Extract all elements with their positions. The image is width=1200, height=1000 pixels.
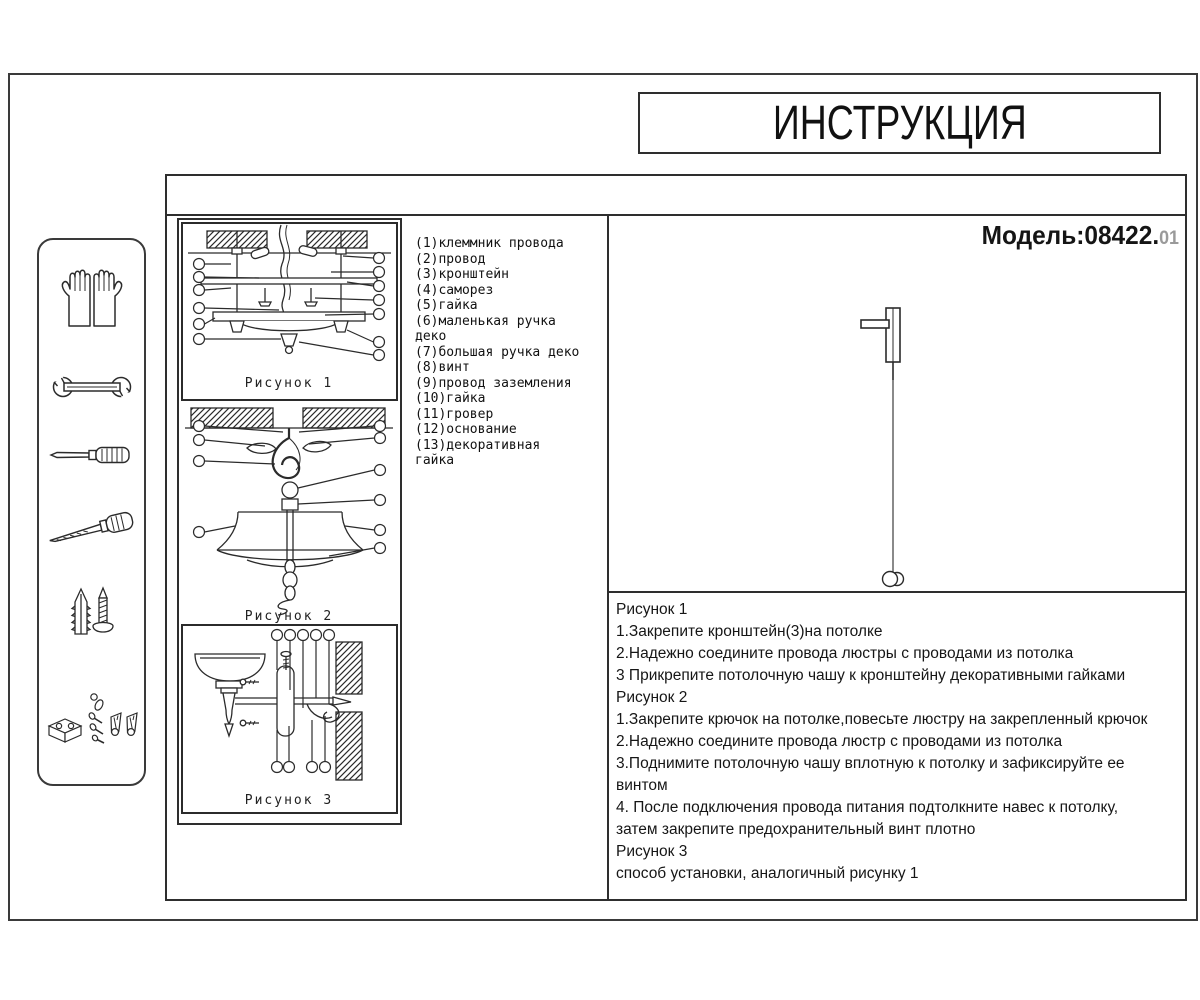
parts-list: (1)клеммник провода (2)провод (3)кронште… — [415, 236, 585, 469]
parts-list-item: (10)гайка — [415, 391, 585, 407]
gloves-icon — [56, 264, 128, 328]
horizontal-divider — [609, 591, 1185, 593]
parts-list-item: (3)кронштейн — [415, 267, 585, 283]
hardware-kit-icon — [45, 690, 139, 746]
instruction-line: 2.Надежно соедините провода люстры с про… — [616, 643, 1182, 665]
screwdriver-icon — [49, 444, 133, 466]
awl-icon — [47, 502, 135, 548]
parts-list-item: (11)гровер — [415, 407, 585, 423]
title-box: ИНСТРУКЦИЯ — [638, 92, 1161, 154]
figure-3-diagram: Рисунок 3 — [181, 624, 398, 820]
page-title: ИНСТРУКЦИЯ — [772, 96, 1026, 151]
parts-list-item: (6)маленькая ручка деко — [415, 314, 585, 345]
content-header-band — [167, 176, 1185, 216]
instruction-line: 3.Поднимите потолочную чашу вплотную к п… — [616, 753, 1182, 775]
parts-list-item: (12)основание — [415, 422, 585, 438]
figures-panel: Рисунок 1 — [177, 218, 402, 825]
figure-3-caption: Рисунок 3 — [245, 793, 333, 808]
parts-list-item: (7)большая ручка деко — [415, 345, 585, 361]
parts-list-item: (2)провод — [415, 252, 585, 268]
tools-sidebar — [37, 238, 146, 786]
figure-2-caption: Рисунок 2 — [245, 609, 333, 624]
installation-instructions: Рисунок 1 1.Закрепите кронштейн(3)на пот… — [616, 599, 1182, 891]
wrench-icon — [51, 372, 133, 402]
instruction-line: затем закрепите предохранительный винт п… — [616, 819, 1182, 841]
instruction-line: 4. После подключения провода питания под… — [616, 797, 1182, 819]
instruction-line: 1.Закрепите кронштейн(3)на потолке — [616, 621, 1182, 643]
instruction-line: Рисунок 1 — [616, 599, 1182, 621]
parts-list-item: (8)винт — [415, 360, 585, 376]
model-number: Модель:08422.01 — [982, 220, 1179, 251]
vertical-divider — [607, 216, 609, 899]
parts-list-item: (9)провод заземления — [415, 376, 585, 392]
model-label: Модель:08422. — [982, 220, 1160, 250]
instruction-line: 3 Прикрепите потолочную чашу к кронштейн… — [616, 665, 1182, 687]
figure-1-diagram: Рисунок 1 — [181, 222, 398, 401]
instruction-line: 1.Закрепите крючок на потолке,повесьте л… — [616, 709, 1182, 731]
model-suffix: 01 — [1159, 228, 1179, 249]
instruction-line: Рисунок 2 — [616, 687, 1182, 709]
instruction-line: Рисунок 3 — [616, 841, 1182, 863]
pendant-lamp-diagram — [795, 282, 995, 594]
parts-list-item: (5)гайка — [415, 298, 585, 314]
parts-list-item: (4)саморез — [415, 283, 585, 299]
content-box: Модель:08422.01 — [165, 174, 1187, 901]
parts-list-item: (13)декоративная гайка — [415, 438, 585, 469]
instruction-line: способ установки, аналогичный рисунку 1 — [616, 863, 1182, 885]
instruction-line: 2.Надежно соедините провода люстр с пров… — [616, 731, 1182, 753]
figure-1-caption: Рисунок 1 — [245, 376, 333, 391]
parts-list-item: (1)клеммник провода — [415, 236, 585, 252]
instruction-sheet-page: { "header": { "title": "ИНСТРУКЦИЯ" }, "… — [0, 0, 1200, 1000]
figure-2-diagram: Рисунок 2 — [179, 404, 400, 624]
instruction-line: винтом — [616, 775, 1182, 797]
anchor-screw-icon — [63, 586, 121, 644]
